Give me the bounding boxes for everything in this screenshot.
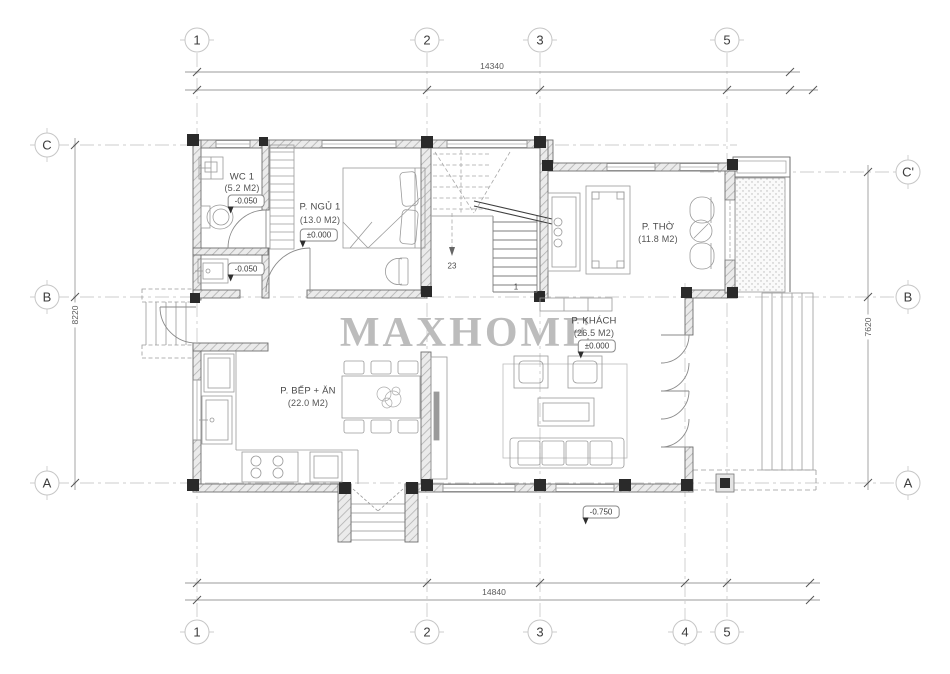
tv-cabinet [431, 357, 447, 479]
entry-steps [351, 489, 405, 542]
elevation-tag-wc: -0.050 [228, 195, 265, 208]
grid-bubble-bottom-4: 4 [673, 620, 698, 645]
bed [343, 168, 425, 248]
grid-bubble-top-2: 2 [415, 28, 440, 53]
flower-centerpiece [377, 387, 401, 408]
kitchen-appliance [310, 452, 342, 482]
grid-bubble-bottom-3: 3 [528, 620, 553, 645]
rug [503, 364, 627, 458]
wardrobe [270, 145, 294, 249]
dimension-top: 14340 [477, 61, 507, 71]
room-label-living: P. KHÁCH [571, 316, 616, 327]
room-label-kitchen: P. BẾP + ĂN [280, 386, 335, 397]
grid-bubble-right-C: C' [896, 160, 921, 185]
maxhome-watermark: MAXHOME [340, 309, 594, 357]
room-area-worship: (11.8 M2) [638, 234, 678, 244]
kitchen-counter [236, 351, 358, 484]
room-area-wc: (5.2 M2) [224, 183, 259, 193]
room-area-kitchen: (22.0 M2) [288, 398, 328, 408]
sink [199, 396, 232, 444]
altar-table [586, 186, 630, 274]
balcony [733, 157, 790, 292]
dining-table [342, 376, 420, 418]
grid-bubble-bottom-2: 2 [415, 620, 440, 645]
grid-bubble-right-A: A [896, 471, 921, 496]
shower [199, 157, 223, 179]
dimension-left: 8220 [70, 303, 80, 328]
room-label-wc: WC 1 [230, 172, 255, 183]
stair-step-count: 23 [448, 262, 457, 271]
room-area-living: (26.5 M2) [574, 328, 614, 338]
elevation-tag-utility: -0.050 [228, 263, 265, 276]
grid-bubble-top-5: 5 [715, 28, 740, 53]
rear-porch-deck [693, 293, 816, 492]
floor-plan-canvas: MAXHOME 1 2 3 5 1 2 3 4 5 C B A C' B A 1… [0, 0, 950, 674]
grid-bubble-bottom-5: 5 [715, 620, 740, 645]
altar-cabinet [548, 193, 580, 271]
room-label-worship: P. THỜ [642, 222, 674, 233]
grid-bubble-top-1: 1 [185, 28, 210, 53]
stove [242, 452, 298, 482]
sofa [510, 438, 624, 468]
grid-bubble-right-B: B [896, 285, 921, 310]
coffee-table [538, 398, 594, 426]
stair-start-number: 1 [514, 283, 518, 292]
elevation-tag-porch: -0.750 [583, 506, 620, 519]
bedroom-stool [385, 258, 408, 285]
worship-chairs [690, 197, 714, 269]
room-area-bedroom: (13.0 M2) [300, 215, 340, 225]
grid-bubble-left-A: A [35, 471, 60, 496]
side-porch [142, 289, 196, 358]
grid-bubble-top-3: 3 [528, 28, 553, 53]
grid-bubble-left-C: C [35, 133, 60, 158]
elevation-tag-bedroom: ±0.000 [300, 229, 338, 242]
doors [160, 210, 310, 343]
room-label-bedroom: P. NGỦ 1 [299, 202, 340, 213]
grid-bubble-left-B: B [35, 285, 60, 310]
dimension-right: 7620 [863, 315, 873, 340]
dimension-bottom: 14840 [479, 587, 509, 597]
dining-chairs [344, 361, 418, 433]
fridge [204, 354, 234, 392]
elevation-tag-living: ±0.000 [578, 340, 616, 353]
armchair [514, 356, 602, 388]
grid-bubble-bottom-1: 1 [185, 620, 210, 645]
stairs [431, 150, 552, 292]
